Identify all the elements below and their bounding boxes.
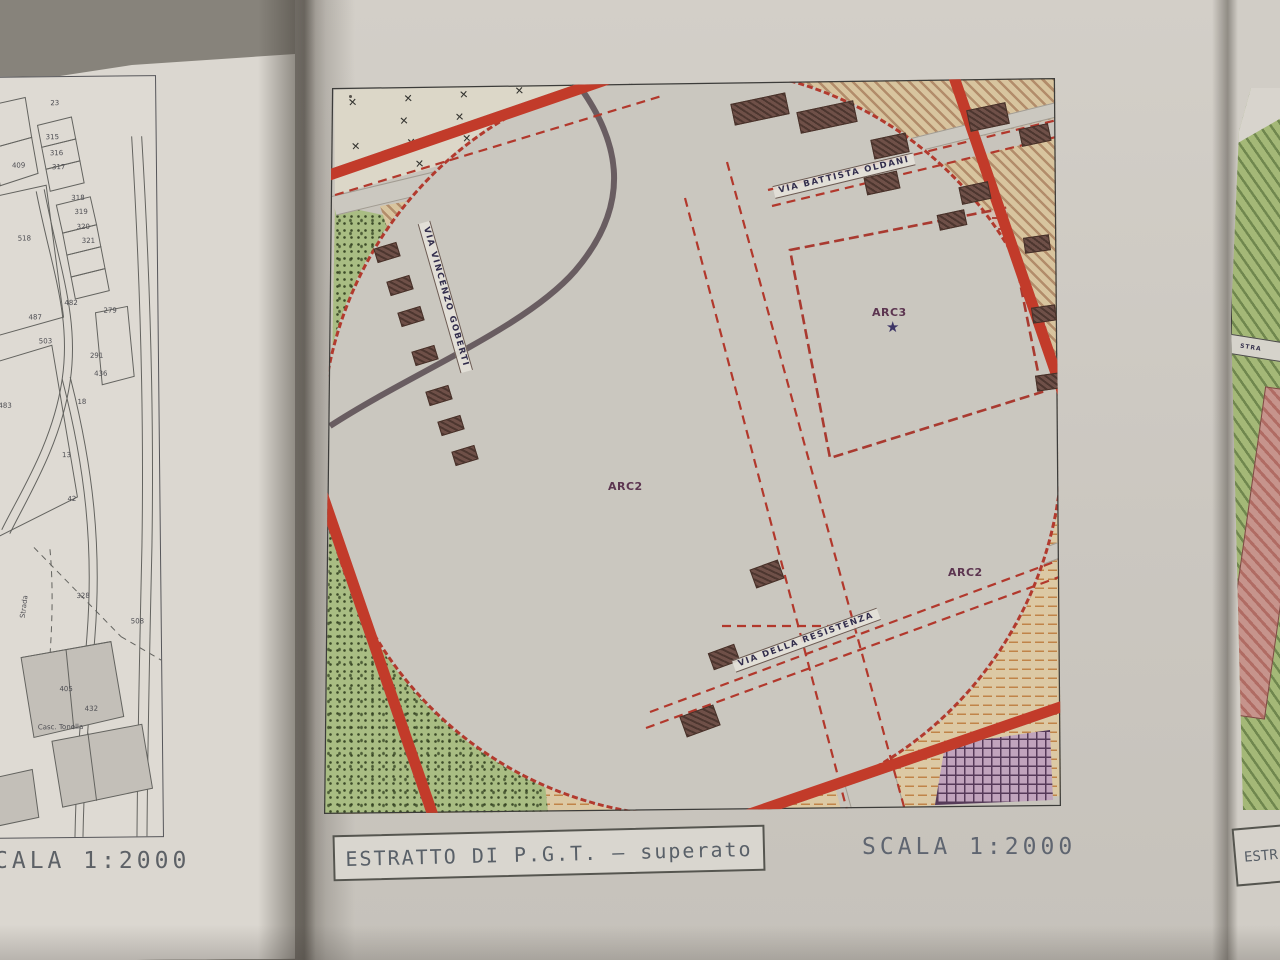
parcel-number: 18 bbox=[77, 398, 86, 406]
zone-code-label: ARC2 bbox=[948, 566, 983, 579]
parcel-number: 318 bbox=[71, 194, 84, 202]
parcel-number: 518 bbox=[18, 234, 31, 242]
photo-of-plan-sheets: 2331531631740931831932032151848227948750… bbox=[0, 0, 1280, 960]
parcel-number: Casc. Tonella bbox=[38, 723, 84, 731]
pgt-extract-map: VIA VINCENZO GOBERTIVIA BATTISTA OLDANIV… bbox=[320, 66, 1064, 818]
parcel-number: 432 bbox=[85, 705, 98, 713]
parcel-number: 483 bbox=[0, 402, 12, 410]
parcel-number: 409 bbox=[12, 161, 25, 169]
parcel-number: 23 bbox=[50, 99, 59, 107]
page-fold-shadow bbox=[258, 0, 326, 960]
parcel-number: 317 bbox=[52, 163, 65, 171]
star-icon: ★ bbox=[886, 320, 899, 334]
parcel-number: 482 bbox=[64, 299, 77, 307]
right-caption-box: ESTR bbox=[1232, 823, 1280, 886]
cadastral-map: 2331531631740931831932032151848227948750… bbox=[0, 75, 164, 839]
parcel-number: 508 bbox=[131, 617, 144, 625]
zone-labels: ARC2ARC3ARC2 bbox=[320, 66, 1064, 818]
parcel-number: 321 bbox=[82, 237, 95, 245]
pgt-map-area: VIA VINCENZO GOBERTIVIA BATTISTA OLDANIV… bbox=[320, 66, 1064, 818]
cadastral-parcel-numbers: 2331531631740931831932032151848227948750… bbox=[0, 76, 165, 840]
parcel-number: 436 bbox=[94, 370, 107, 378]
parcel-number: 315 bbox=[46, 133, 59, 141]
parcel-number: 279 bbox=[103, 307, 116, 315]
parcel-number: 316 bbox=[50, 149, 63, 157]
zone-code-label: ARC2 bbox=[608, 480, 643, 493]
parcel-number: 503 bbox=[39, 337, 52, 345]
photo-vignette bbox=[0, 925, 1280, 960]
parcel-number: 487 bbox=[28, 313, 41, 321]
parcel-number: 320 bbox=[77, 223, 90, 231]
parcel-number: 42 bbox=[67, 495, 76, 503]
parcel-number: Strada bbox=[19, 595, 30, 619]
parcel-number: 13 bbox=[62, 451, 71, 459]
parcel-number: 291 bbox=[90, 352, 103, 360]
parcel-number: 319 bbox=[74, 208, 87, 216]
parcel-number: 405 bbox=[59, 685, 72, 693]
center-scale-caption: SCALA 1:2000 bbox=[862, 834, 1076, 860]
parcel-number: 328 bbox=[76, 592, 89, 600]
left-scale-caption: CALA 1:2000 bbox=[0, 848, 190, 874]
right-page-crease bbox=[1212, 0, 1238, 960]
